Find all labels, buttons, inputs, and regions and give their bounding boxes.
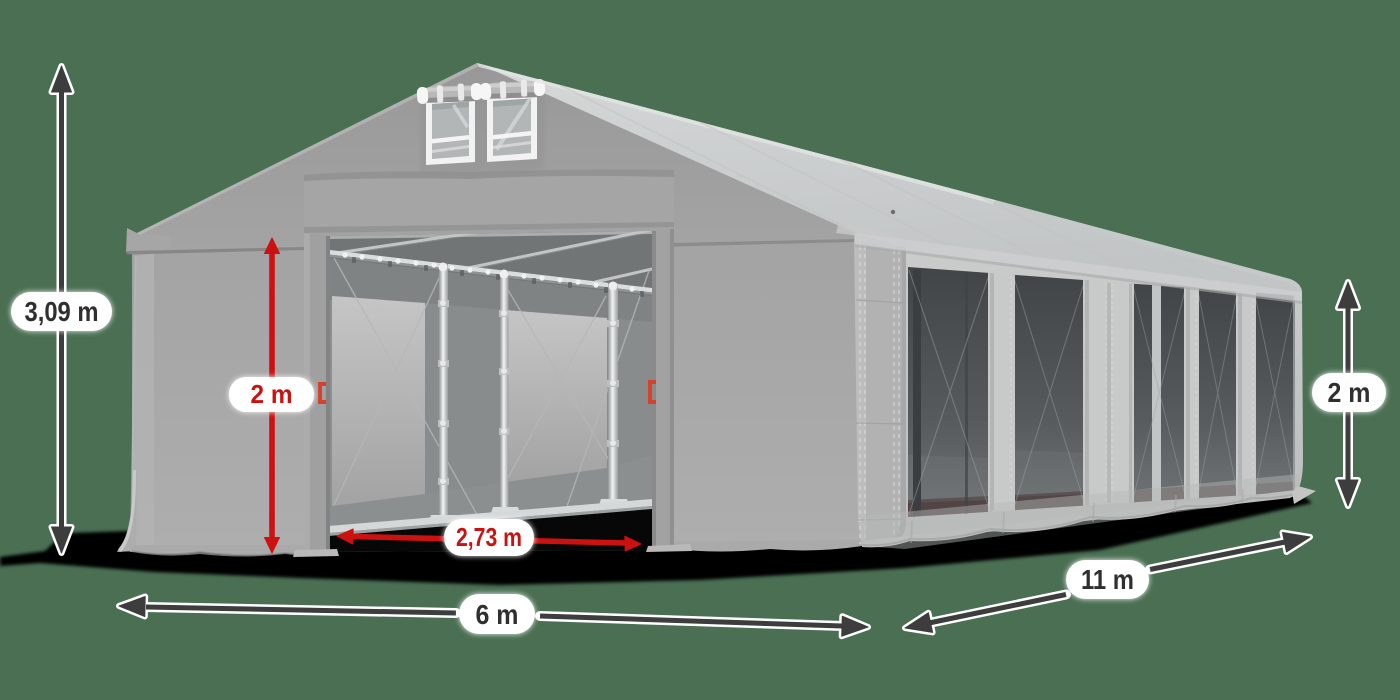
- svg-text:3,09 m: 3,09 m: [25, 296, 99, 327]
- svg-text:2 m: 2 m: [1328, 377, 1371, 408]
- svg-text:2 m: 2 m: [251, 379, 293, 409]
- svg-text:11 m: 11 m: [1081, 564, 1134, 595]
- svg-text:2,73 m: 2,73 m: [456, 522, 522, 552]
- svg-text:6 m: 6 m: [476, 599, 519, 630]
